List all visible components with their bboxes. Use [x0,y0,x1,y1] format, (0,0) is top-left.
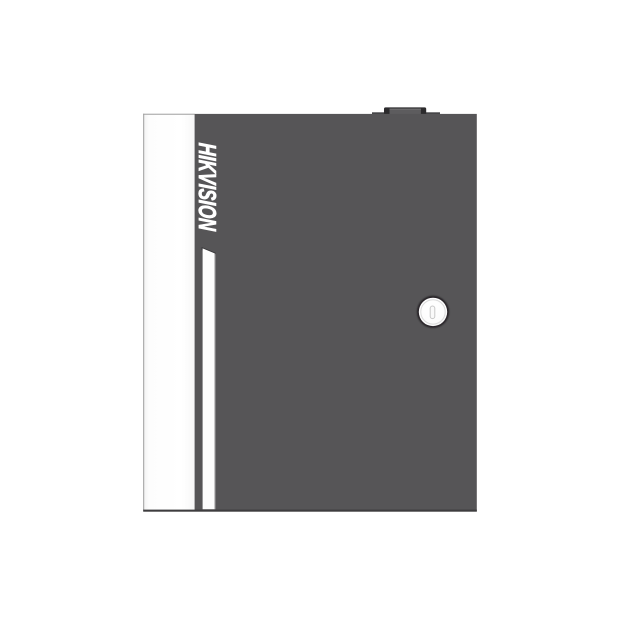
svg-text:HIKVISION: HIKVISION [193,142,220,232]
